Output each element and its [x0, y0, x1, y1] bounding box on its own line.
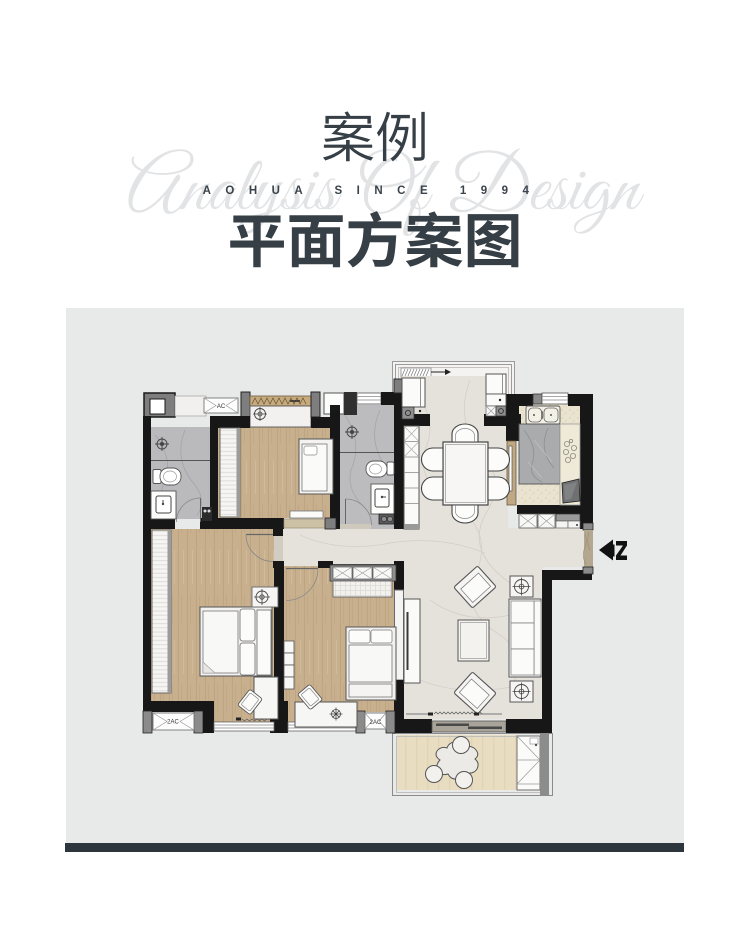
svg-text:AOHUA SINCE 1994: AOHUA SINCE 1994 — [203, 185, 544, 197]
svg-text:2AC: 2AC — [370, 720, 382, 726]
svg-text:AC: AC — [217, 404, 226, 410]
svg-text:2AC: 2AC — [167, 720, 179, 726]
